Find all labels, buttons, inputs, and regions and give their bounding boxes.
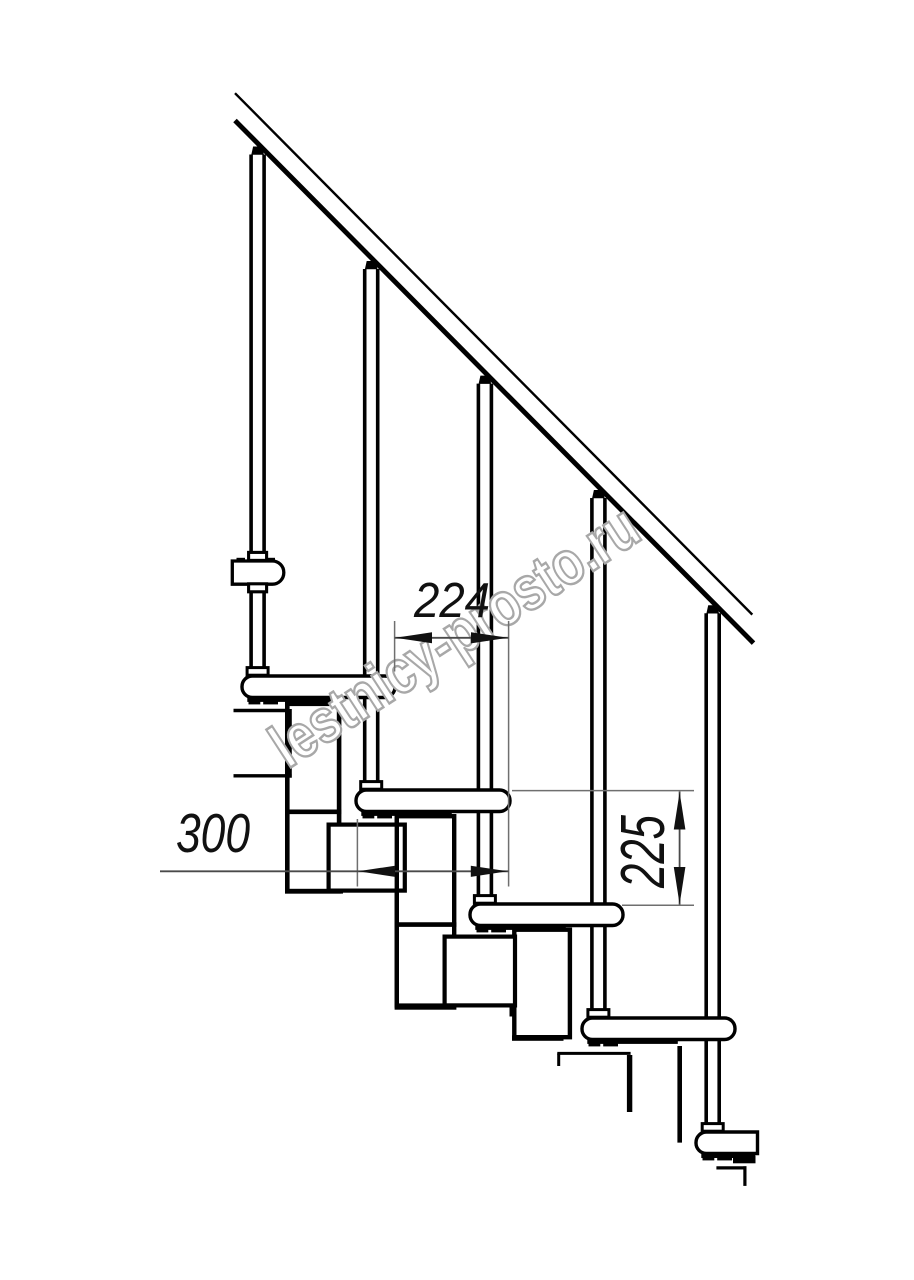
svg-text:224: 224 xyxy=(413,573,490,628)
svg-text:300: 300 xyxy=(176,802,250,864)
svg-text:225: 225 xyxy=(609,815,678,889)
